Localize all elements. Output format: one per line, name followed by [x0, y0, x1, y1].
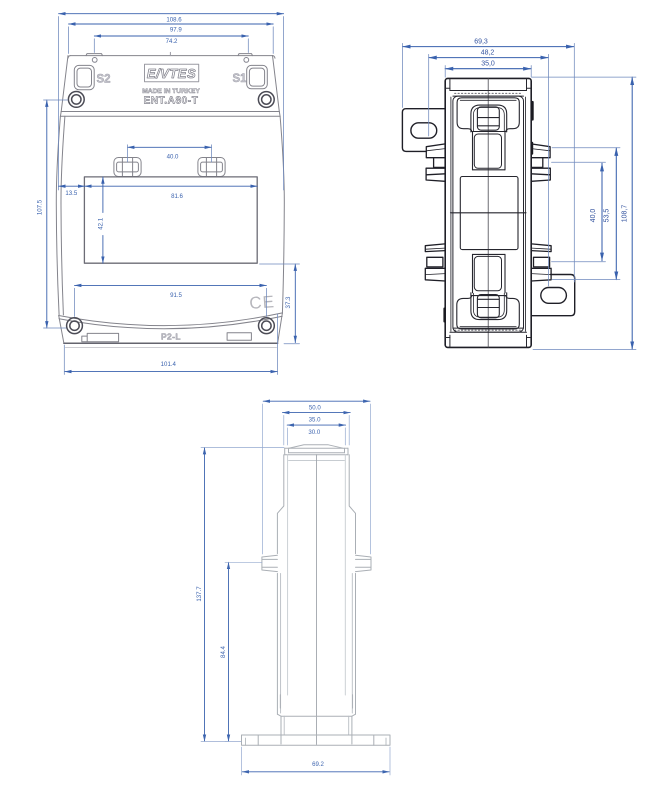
svg-text:81.6: 81.6	[171, 193, 183, 200]
svg-text:69,3: 69,3	[474, 39, 488, 46]
svg-text:ENT.A80-T: ENT.A80-T	[144, 96, 199, 107]
svg-text:101.4: 101.4	[161, 361, 177, 368]
svg-text:E/VTES: E/VTES	[147, 66, 196, 81]
svg-text:13.5: 13.5	[65, 190, 77, 197]
svg-text:35,0: 35,0	[481, 61, 495, 68]
svg-text:108,7: 108,7	[621, 205, 628, 223]
svg-text:S1: S1	[232, 73, 247, 85]
svg-text:P2-L: P2-L	[161, 332, 181, 342]
svg-text:40.0: 40.0	[167, 154, 179, 161]
svg-text:35.0: 35.0	[309, 416, 321, 423]
svg-text:30.0: 30.0	[308, 429, 320, 436]
svg-text:84.4: 84.4	[220, 645, 227, 657]
svg-text:42.1: 42.1	[98, 217, 105, 229]
svg-text:53,5: 53,5	[604, 209, 611, 223]
svg-text:74.2: 74.2	[166, 38, 178, 45]
svg-text:137.7: 137.7	[196, 586, 203, 602]
svg-text:MADE IN TURKEY: MADE IN TURKEY	[142, 88, 200, 95]
svg-text:107.5: 107.5	[37, 199, 44, 215]
svg-text:40,0: 40,0	[590, 209, 597, 223]
svg-text:97.9: 97.9	[170, 26, 182, 33]
svg-text:CE: CE	[249, 292, 276, 313]
svg-text:50.0: 50.0	[309, 405, 321, 412]
svg-text:108.6: 108.6	[166, 16, 182, 23]
svg-text:91.5: 91.5	[170, 292, 182, 299]
svg-text:48,2: 48,2	[481, 49, 495, 56]
svg-text:37.3: 37.3	[285, 296, 292, 308]
svg-text:69.2: 69.2	[312, 761, 324, 768]
svg-text:S2: S2	[96, 73, 110, 85]
